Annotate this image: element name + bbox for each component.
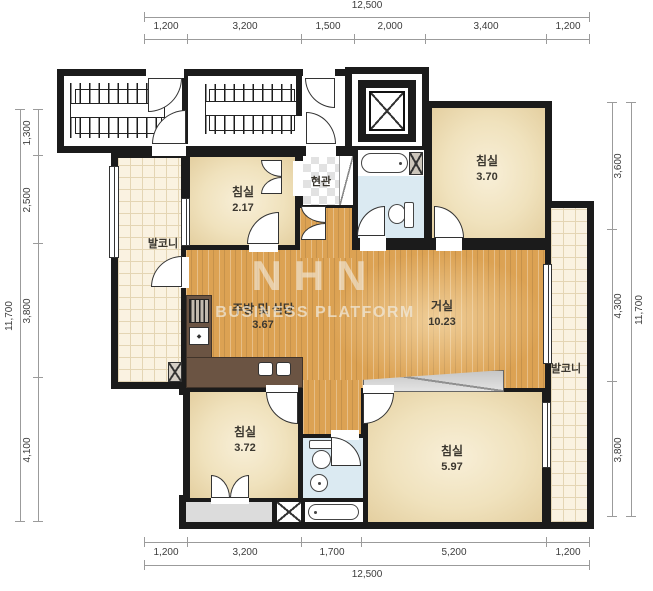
room-label: 주방 및 식당	[211, 302, 315, 316]
room-label: 거실	[402, 299, 482, 313]
room-label: 침실	[447, 154, 527, 168]
bathtub-icon	[361, 153, 408, 173]
room-label: 발코니	[542, 362, 590, 376]
prep-box-icon: ◆	[189, 327, 209, 345]
floor-plan: ◆	[0, 0, 653, 591]
sink-basin	[276, 362, 291, 376]
elevator-icon	[369, 91, 405, 131]
room-label: 침실	[205, 425, 285, 439]
duct-x-icon	[168, 362, 182, 382]
room-area: 2.17	[203, 202, 283, 215]
room-area: 5.97	[412, 461, 492, 474]
room-label: 발코니	[123, 237, 203, 251]
sink-basin	[258, 362, 273, 376]
staircase-icon	[205, 84, 297, 134]
door-opening	[360, 236, 386, 251]
door-opening	[303, 67, 335, 78]
bathtub-room-bottom	[305, 502, 363, 522]
door-opening	[436, 238, 462, 251]
room-label: 침실	[412, 444, 492, 458]
room-area: 3.72	[205, 442, 285, 455]
duct-x-icon	[409, 152, 423, 175]
door-opening	[152, 144, 186, 156]
washbasin-icon	[310, 474, 328, 492]
room-label: 침실	[203, 185, 283, 199]
room-area: 10.23	[402, 316, 482, 329]
door-opening	[306, 144, 336, 157]
toilet-icon	[312, 450, 331, 469]
window-icon	[109, 166, 119, 258]
bathtub-icon	[308, 504, 359, 520]
duct-x-icon	[277, 502, 301, 522]
kitchen-sink-icon	[257, 361, 292, 377]
window-icon	[543, 264, 552, 364]
floor-plan-image: 12,500 1,200 3,200 1,500 2,000 3,400 1,2…	[0, 0, 653, 591]
gas-stove-icon	[189, 299, 209, 323]
door-opening	[146, 67, 184, 78]
window-icon	[542, 402, 551, 468]
inner-hall-floor	[303, 380, 361, 434]
utility-strip	[186, 502, 272, 522]
room-label: 현관	[293, 175, 349, 189]
stair-landing	[205, 101, 297, 116]
room-area: 3.70	[447, 171, 527, 184]
room-area: 3.67	[211, 319, 315, 332]
toilet-tank-icon	[404, 202, 414, 228]
